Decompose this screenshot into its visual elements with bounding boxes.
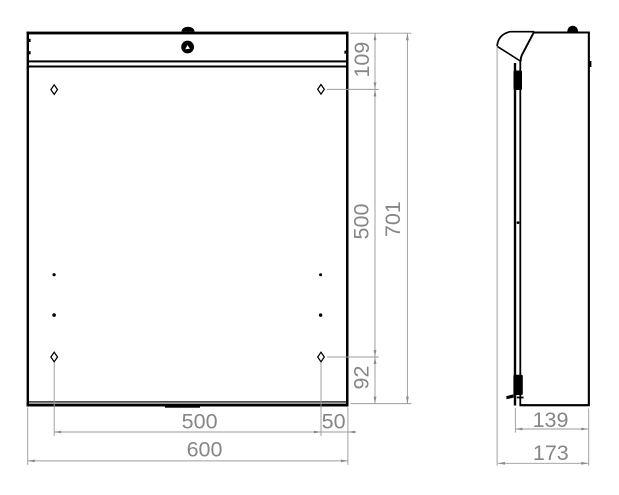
svg-text:50: 50 [322, 409, 346, 433]
svg-text:92: 92 [350, 366, 374, 390]
svg-text:109: 109 [350, 42, 374, 78]
svg-text:600: 600 [187, 437, 223, 461]
svg-text:701: 701 [381, 201, 405, 237]
svg-text:500: 500 [350, 204, 374, 240]
svg-text:139: 139 [533, 408, 569, 432]
svg-text:500: 500 [182, 409, 218, 433]
svg-text:173: 173 [533, 441, 569, 465]
